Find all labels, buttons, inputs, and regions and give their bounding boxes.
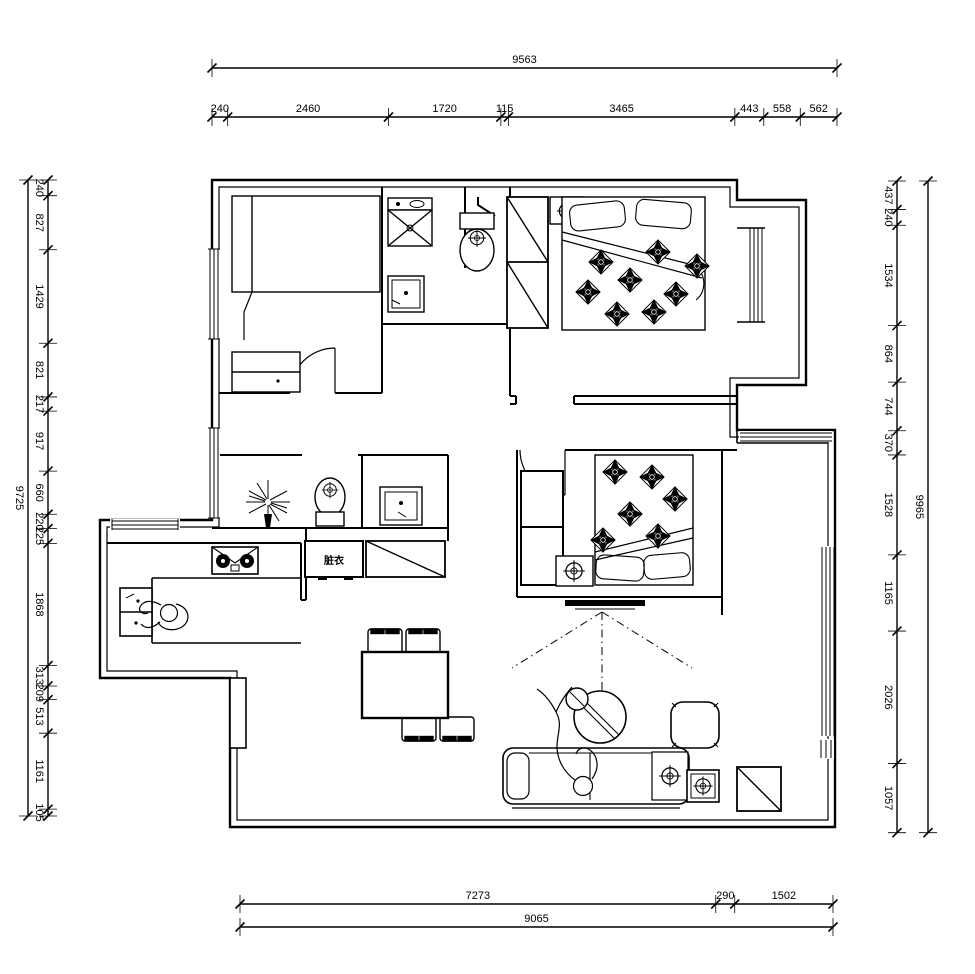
entry-cabinet <box>737 767 781 811</box>
dim-label: 240 <box>882 208 894 226</box>
window-left-1 <box>208 249 220 339</box>
dim-label: 558 <box>773 103 791 115</box>
dim-label: 9725 <box>13 486 25 510</box>
ottoman <box>671 702 719 748</box>
sink-unit <box>120 588 152 636</box>
dim-group-bottom: 727329015029065 <box>236 890 838 936</box>
lamp-table <box>687 770 719 802</box>
bedroom1-wall <box>510 396 737 404</box>
chair <box>440 717 474 741</box>
dim-label: 209 <box>33 684 45 702</box>
floor-plan-svg: 脏衣 <box>0 0 975 974</box>
dim-label: 864 <box>882 345 894 363</box>
dim-group-top: 2402460172011534654435585629563 <box>208 54 842 126</box>
window-left-2 <box>208 428 220 518</box>
dim-label: 513 <box>33 707 45 725</box>
dim-label: 7273 <box>466 890 490 902</box>
dim-label: 917 <box>33 432 45 450</box>
dim-label: 370 <box>882 434 894 452</box>
dim-label: 1161 <box>33 759 45 783</box>
dim-label: 313 <box>33 667 45 685</box>
window-right <box>820 546 834 736</box>
dining-table <box>362 629 474 741</box>
dim-label: 1057 <box>882 786 894 810</box>
dim-label: 744 <box>882 397 894 415</box>
dim-label: 2460 <box>296 103 320 115</box>
dim-label: 105 <box>33 803 45 821</box>
dim-label: 1868 <box>33 592 45 616</box>
diagonal-cabinet <box>366 541 445 577</box>
chair <box>406 629 440 653</box>
dim-label: 9965 <box>913 495 925 519</box>
dim-label: 217 <box>33 395 45 413</box>
windows <box>110 228 834 759</box>
dim-label: 1528 <box>882 493 894 517</box>
dim-label: 3465 <box>609 103 633 115</box>
plant <box>246 480 290 528</box>
dim-label: 2026 <box>882 685 894 709</box>
wall-pier <box>230 678 246 748</box>
dim-label: 660 <box>33 483 45 501</box>
dim-label: 115 <box>496 103 514 115</box>
dim-label: 1534 <box>882 263 894 287</box>
toilet-2 <box>315 478 345 526</box>
chair <box>368 629 402 653</box>
dim-label: 240 <box>211 103 229 115</box>
dim-label: 437 <box>882 186 894 204</box>
window-right-bottom <box>819 739 834 759</box>
dim-label: 240 <box>33 179 45 197</box>
dim-label: 1429 <box>33 284 45 308</box>
dimensions: 2402460172011534654435585629563727329015… <box>13 54 937 936</box>
toilet <box>460 213 494 271</box>
floor-plan-canvas: 脏衣 <box>0 0 975 974</box>
washbasin-2 <box>380 487 422 525</box>
dim-group-left: 2408271429821217917660220225186831320951… <box>13 176 57 822</box>
gas-stove <box>212 547 258 574</box>
dim-label: 1165 <box>882 581 894 605</box>
window-bay-bedroom1 <box>750 228 762 322</box>
laundry-cabinet-label: 脏衣 <box>324 554 344 567</box>
double-bed-1 <box>562 197 709 330</box>
double-bed-2 <box>591 455 693 585</box>
dim-label: 821 <box>33 361 45 379</box>
washing-machine <box>388 198 432 246</box>
laundry-cabinet: 脏衣 <box>305 541 363 580</box>
washbasin <box>388 276 424 312</box>
wardrobe <box>507 197 548 328</box>
bay-connector <box>737 228 828 443</box>
tatami-bed <box>232 196 380 340</box>
tv-viewing-lines <box>512 612 692 692</box>
dim-label: 827 <box>33 214 45 232</box>
dim-label: 225 <box>33 527 45 545</box>
dim-label: 443 <box>740 103 758 115</box>
dim-label: 9563 <box>512 54 536 66</box>
desk-cabinet <box>232 352 300 392</box>
dim-label: 1720 <box>432 103 456 115</box>
nightstand-lamp-2 <box>556 556 593 586</box>
dim-label: 562 <box>809 103 827 115</box>
tv-set <box>512 600 692 692</box>
dim-group-right: 437240153486474437015281165202610579965 <box>882 177 937 838</box>
dim-label: 9065 <box>524 913 548 925</box>
dim-label: 1502 <box>772 890 796 902</box>
round-coffee-table <box>566 688 626 743</box>
dim-label: 290 <box>716 890 734 902</box>
window-kitchen <box>110 519 180 530</box>
window-living-top <box>739 431 832 442</box>
chair <box>402 717 436 741</box>
